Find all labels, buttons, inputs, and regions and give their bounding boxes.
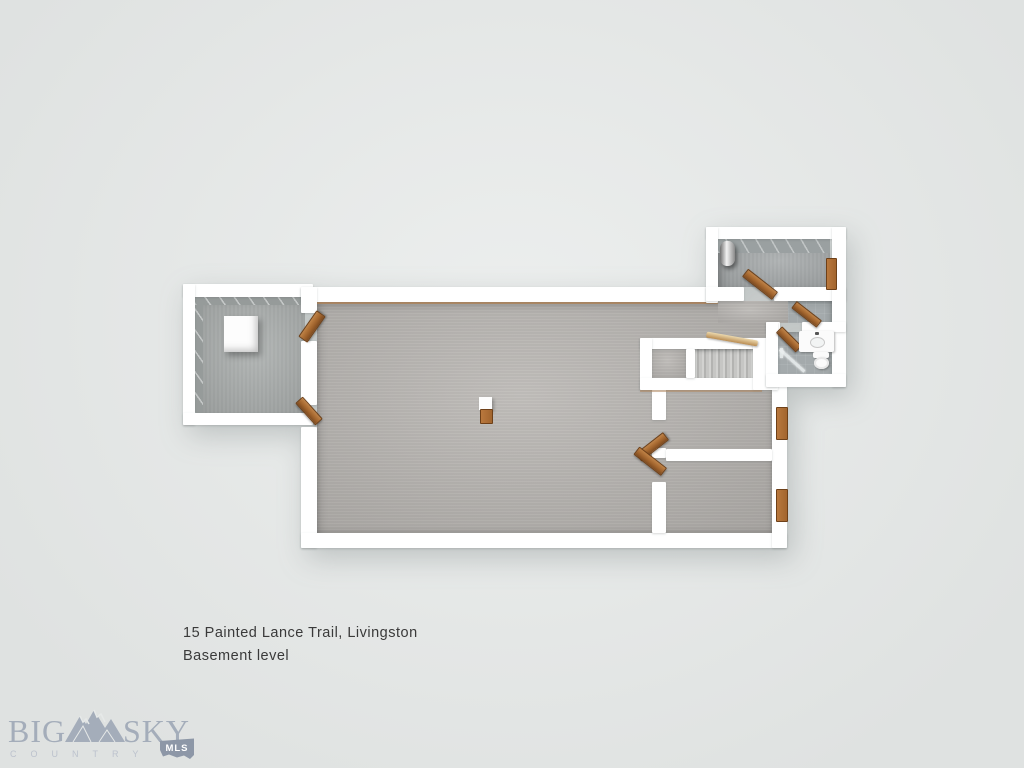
caption-level: Basement level	[183, 645, 418, 668]
utility-top-wall	[706, 227, 846, 239]
main-top-wall	[301, 287, 718, 302]
main-top-baseboard	[317, 302, 718, 304]
main-left-wall-seg1	[301, 287, 317, 313]
mech-room-bottom-wall	[183, 413, 313, 425]
mech-room-left-wall	[183, 284, 195, 425]
support-post-base	[480, 409, 493, 424]
stair-bottom-wall	[640, 378, 762, 390]
bathroom-sink-basin	[810, 337, 825, 348]
logo-subtitle-country: COUNTRY	[10, 749, 152, 759]
caption-address: 15 Painted Lance Trail, Livingston	[183, 622, 418, 645]
mls-badge-montana: MLS	[160, 739, 194, 760]
main-room-floor	[317, 302, 773, 533]
floor-plan-3d	[0, 0, 1024, 768]
main-left-wall-seg2	[301, 341, 317, 405]
hallway-floor	[718, 301, 788, 323]
toilet-bowl	[814, 357, 829, 369]
mechanical-room-floor	[195, 296, 305, 415]
stair-closet-divider	[686, 349, 695, 378]
furnace-unit	[224, 316, 258, 352]
logo-word-big: BIG	[8, 713, 66, 749]
big-sky-mls-logo: BIG SKY COUNTRY MLS	[6, 698, 216, 766]
utility-bottom-wall-seg1	[706, 287, 744, 301]
bedroom-upper-window	[776, 407, 788, 440]
mountain-icon	[65, 710, 125, 742]
utility-closet-door	[826, 258, 837, 290]
main-left-wall-seg3	[301, 427, 317, 548]
floorplan-render-page: 15 Painted Lance Trail, Livingston Basem…	[0, 0, 1024, 768]
bathroom-faucet	[815, 332, 819, 335]
mechanical-room-wall-face-top	[195, 296, 305, 305]
mechanical-room-wall-face-left	[195, 305, 203, 415]
right-outer-wall	[832, 227, 846, 387]
water-heater	[720, 241, 735, 266]
main-bottom-wall	[301, 533, 787, 548]
staircase-treads	[695, 349, 755, 378]
stair-closet-floor	[652, 349, 686, 378]
stair-bottom-baseboard	[640, 390, 762, 392]
caption: 15 Painted Lance Trail, Livingston Basem…	[183, 622, 418, 668]
bedrooms-divider-wall	[666, 449, 772, 461]
mech-room-top-wall	[183, 284, 313, 297]
bedrooms-left-wall-seg3	[652, 482, 666, 533]
shower-glass-return	[780, 348, 783, 358]
bedroom-lower-window	[776, 489, 788, 522]
mls-badge-label: MLS	[165, 743, 188, 754]
bathroom-bottom-wall	[766, 374, 846, 387]
